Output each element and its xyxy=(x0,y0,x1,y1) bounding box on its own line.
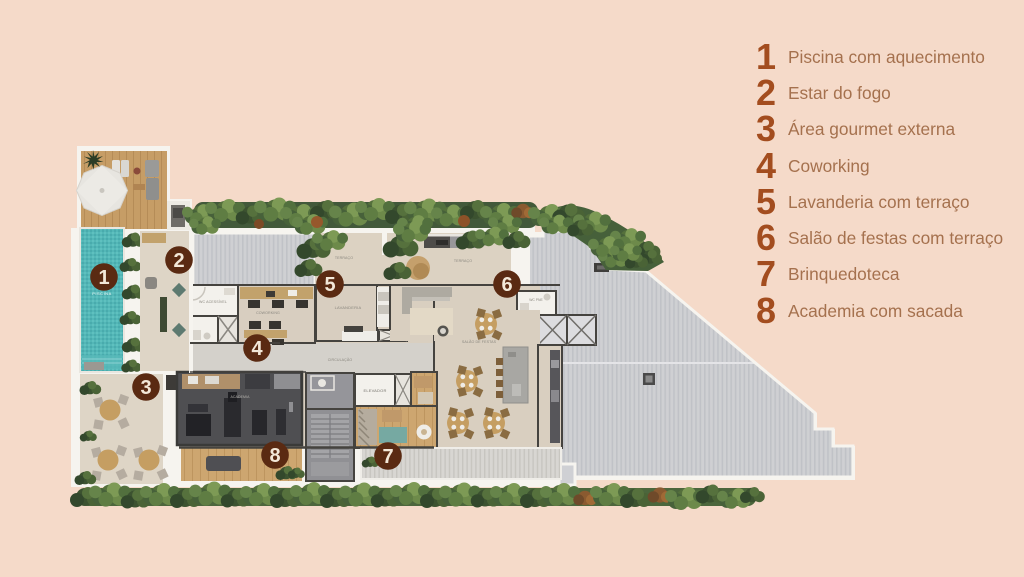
svg-text:WC ACESSÍVEL: WC ACESSÍVEL xyxy=(199,300,227,304)
svg-text:6: 6 xyxy=(501,274,512,296)
svg-text:3: 3 xyxy=(756,108,776,149)
svg-text:8: 8 xyxy=(756,290,776,331)
svg-text:TERRAÇO: TERRAÇO xyxy=(454,259,472,263)
svg-text:TERRAÇO: TERRAÇO xyxy=(335,256,353,260)
svg-text:LAVANDERIA: LAVANDERIA xyxy=(335,305,362,310)
svg-text:4: 4 xyxy=(756,145,776,186)
svg-text:7: 7 xyxy=(756,253,776,294)
svg-text:2: 2 xyxy=(756,72,776,113)
svg-text:COWORKING: COWORKING xyxy=(256,311,280,315)
svg-text:SALÃO DE FESTAS: SALÃO DE FESTAS xyxy=(462,339,497,344)
svg-text:1: 1 xyxy=(98,267,109,289)
svg-text:Brinquedoteca: Brinquedoteca xyxy=(788,264,900,284)
svg-text:ACADEMIA: ACADEMIA xyxy=(230,395,250,399)
svg-text:Academia com sacada: Academia com sacada xyxy=(788,301,963,321)
svg-text:ELEVADOR: ELEVADOR xyxy=(363,388,386,393)
svg-text:5: 5 xyxy=(756,181,776,222)
svg-text:3: 3 xyxy=(140,377,151,399)
svg-text:8: 8 xyxy=(269,445,280,467)
svg-text:1: 1 xyxy=(756,36,776,77)
svg-text:WC PNE: WC PNE xyxy=(529,298,543,302)
svg-text:6: 6 xyxy=(756,217,776,258)
svg-text:Estar do fogo: Estar do fogo xyxy=(788,83,891,103)
svg-text:7: 7 xyxy=(382,446,393,468)
svg-text:Área gourmet externa: Área gourmet externa xyxy=(788,119,956,139)
svg-text:PISCINA: PISCINA xyxy=(92,291,112,296)
svg-text:4: 4 xyxy=(251,338,263,360)
svg-text:Lavanderia com terraço: Lavanderia com terraço xyxy=(788,192,970,212)
svg-text:2: 2 xyxy=(173,250,184,272)
svg-text:Salão de festas com terraço: Salão de festas com terraço xyxy=(788,228,1003,248)
svg-text:Coworking: Coworking xyxy=(788,156,870,176)
svg-text:CIRCULAÇÃO: CIRCULAÇÃO xyxy=(328,357,353,362)
svg-text:Piscina com aquecimento: Piscina com aquecimento xyxy=(788,47,985,67)
svg-text:5: 5 xyxy=(324,274,335,296)
